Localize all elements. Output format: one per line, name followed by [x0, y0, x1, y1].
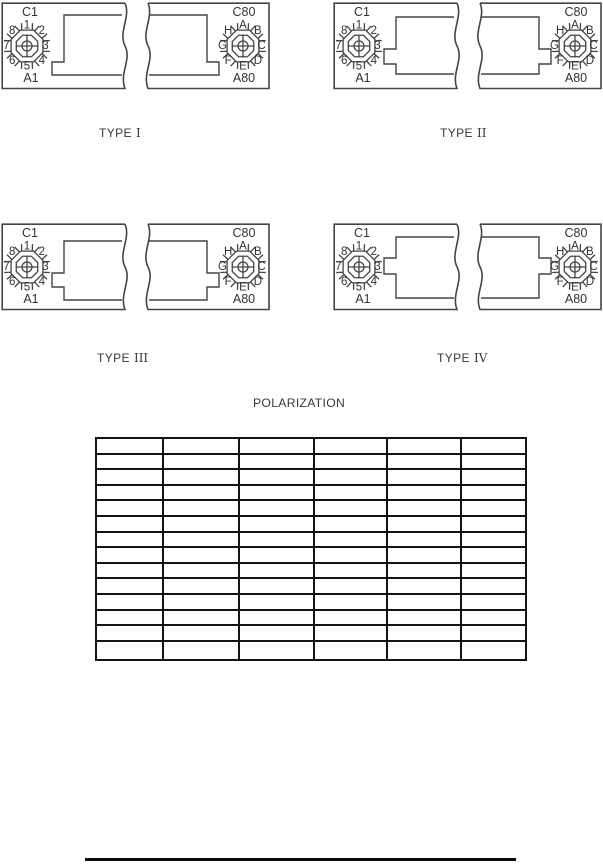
table-cell: [96, 610, 163, 626]
keyway-left: [384, 17, 454, 74]
contact-label-top-right: C80: [565, 5, 588, 19]
dial-position-label: 6: [9, 276, 15, 288]
table-cell: [314, 516, 387, 532]
table-cell: [96, 438, 163, 454]
table-cell: [314, 578, 387, 594]
dial-position-label: D: [254, 276, 262, 288]
dial-position-label: 3: [374, 261, 380, 273]
table-cell: [239, 641, 314, 660]
table-cell: [239, 532, 314, 548]
dial-position-label: H: [224, 25, 232, 37]
keyway-right: [149, 15, 219, 75]
table-cell: [96, 454, 163, 470]
table-cell: [239, 594, 314, 610]
keyway-left: [384, 237, 454, 298]
dial-position-label: 8: [9, 25, 15, 37]
dial-tick-mark: [15, 61, 20, 66]
contact-label-bottom-right: A80: [233, 292, 255, 306]
table-cell: [387, 532, 461, 548]
table-cell: [163, 563, 239, 579]
table-cell: [461, 485, 526, 501]
contact-label-bottom-right: A80: [233, 71, 255, 85]
dial-position-label: F: [225, 276, 232, 288]
dial-position-label: F: [557, 276, 564, 288]
table-cell: [96, 547, 163, 563]
dial-position-label: G: [550, 40, 559, 52]
dial-position-label: 7: [3, 261, 9, 273]
table-cell: [387, 578, 461, 594]
table-cell: [163, 469, 239, 485]
table-cell: [387, 500, 461, 516]
table-cell: [314, 610, 387, 626]
table-row: [96, 516, 526, 532]
dial-position-label: 8: [341, 246, 347, 258]
keyway-right: [481, 17, 551, 74]
contact-label-bottom-left: A1: [23, 71, 38, 85]
dial-position-label: 4: [39, 55, 46, 67]
dial-position-label: 1: [356, 20, 362, 32]
table-cell: [461, 610, 526, 626]
table-row: [96, 594, 526, 610]
dial-position-label: 6: [9, 55, 15, 67]
table-row: [96, 610, 526, 626]
table-cell: [314, 563, 387, 579]
dial-position-label: A: [571, 241, 579, 253]
keyway-left: [52, 241, 122, 300]
dial-position-label: B: [254, 246, 262, 258]
keyway-right: [481, 237, 551, 298]
type-iv-caption: TYPEIV: [437, 351, 487, 365]
keyway-left: [52, 15, 122, 75]
dial-tick-mark: [15, 26, 20, 31]
dial-position-label: C: [589, 40, 597, 52]
table-cell: [163, 454, 239, 470]
table-cell: [387, 485, 461, 501]
table-cell: [239, 625, 314, 641]
dial-tick-mark: [15, 247, 20, 252]
table-cell: [163, 532, 239, 548]
dial-position-label: 2: [39, 246, 45, 258]
table-cell: [96, 578, 163, 594]
table-cell: [461, 532, 526, 548]
dial-position-label: H: [556, 246, 564, 258]
table-row: [96, 563, 526, 579]
table-cell: [96, 532, 163, 548]
table-cell: [239, 563, 314, 579]
table-cell: [96, 516, 163, 532]
table-cell: [239, 500, 314, 516]
dial-position-label: B: [586, 25, 594, 37]
contact-label-bottom-left: A1: [355, 71, 370, 85]
dial-tick-mark: [15, 282, 20, 287]
table-row: [96, 485, 526, 501]
type-numeral: III: [134, 351, 148, 365]
table-cell: [96, 500, 163, 516]
dial-position-label: 7: [3, 40, 9, 52]
dial-tick-mark: [347, 282, 352, 287]
contact-label-top-right: C80: [565, 226, 588, 240]
dial-position-label: A: [239, 241, 247, 253]
table-cell: [314, 500, 387, 516]
dial-position-label: D: [586, 55, 594, 67]
dial-position-label: D: [586, 276, 594, 288]
table-cell: [387, 610, 461, 626]
connector-diagram-type-i: 12345678ABCDEFGHC1A1C80A80: [1, 2, 271, 90]
type-iii-caption: TYPEIII: [97, 351, 148, 365]
dial-position-label: 1: [356, 241, 362, 253]
table-cell: [96, 469, 163, 485]
table-cell: [239, 516, 314, 532]
contact-label-top-left: C1: [354, 226, 370, 240]
contact-label-top-left: C1: [22, 226, 38, 240]
type-word: TYPE: [99, 126, 132, 140]
dial-position-label: 3: [42, 261, 48, 273]
dial-position-label: H: [224, 246, 232, 258]
table-cell: [461, 500, 526, 516]
dial-position-label: 4: [371, 55, 378, 67]
dial-position-label: G: [218, 40, 227, 52]
table-cell: [239, 547, 314, 563]
contact-label-top-left: C1: [22, 5, 38, 19]
table-cell: [387, 594, 461, 610]
table-cell: [239, 454, 314, 470]
table-cell: [314, 438, 387, 454]
table-cell: [314, 454, 387, 470]
dial-position-label: D: [254, 55, 262, 67]
table-cell: [314, 625, 387, 641]
table-cell: [163, 547, 239, 563]
dial-position-label: C: [589, 261, 597, 273]
table-cell: [387, 641, 461, 660]
dial-position-label: B: [254, 25, 262, 37]
contact-label-bottom-right: A80: [565, 292, 587, 306]
table-cell: [163, 594, 239, 610]
table-row: [96, 454, 526, 470]
table-cell: [314, 594, 387, 610]
dial-position-label: 8: [341, 25, 347, 37]
table-cell: [96, 594, 163, 610]
keyway-right: [149, 241, 219, 300]
dial-position-label: C: [257, 40, 265, 52]
table-cell: [163, 610, 239, 626]
table-cell: [163, 578, 239, 594]
table-cell: [461, 547, 526, 563]
dial-position-label: 6: [341, 55, 347, 67]
table-row: [96, 500, 526, 516]
table-cell: [461, 641, 526, 660]
type-word: TYPE: [437, 351, 470, 365]
contact-label-top-right: C80: [233, 5, 256, 19]
table-cell: [387, 516, 461, 532]
table-cell: [387, 625, 461, 641]
table-cell: [461, 578, 526, 594]
dial-position-label: G: [550, 261, 559, 273]
type-word: TYPE: [97, 351, 130, 365]
table-cell: [387, 563, 461, 579]
type-i-caption: TYPEI: [99, 126, 141, 140]
dial-position-label: A: [239, 20, 247, 32]
type-numeral: II: [477, 126, 486, 140]
table-cell: [387, 454, 461, 470]
dial-position-label: C: [257, 261, 265, 273]
dial-position-label: 7: [335, 40, 341, 52]
polarization-title: POLARIZATION: [253, 396, 345, 410]
table-cell: [461, 594, 526, 610]
table-cell: [96, 641, 163, 660]
contact-label-bottom-left: A1: [355, 292, 370, 306]
dial-position-label: 2: [371, 246, 377, 258]
table-cell: [163, 485, 239, 501]
table-cell: [314, 485, 387, 501]
table-cell: [461, 454, 526, 470]
table-row: [96, 625, 526, 641]
connector-diagram-type-iv: 12345678ABCDEFGHC1A1C80A80: [333, 223, 603, 311]
table-cell: [461, 438, 526, 454]
table-cell: [387, 547, 461, 563]
dial-position-label: F: [225, 55, 232, 67]
dial-position-label: 2: [371, 25, 377, 37]
dial-position-label: 1: [24, 20, 30, 32]
type-numeral: IV: [474, 351, 487, 365]
table-cell: [314, 469, 387, 485]
dial-position-label: 1: [24, 241, 30, 253]
table-cell: [96, 563, 163, 579]
dial-position-label: A: [571, 20, 579, 32]
footer-rule: [85, 858, 516, 861]
type-ii-caption: TYPEII: [440, 126, 486, 140]
table-row: [96, 578, 526, 594]
table-row: [96, 469, 526, 485]
type-numeral: I: [136, 126, 141, 140]
dial-tick-mark: [347, 26, 352, 31]
dial-position-label: 3: [42, 40, 48, 52]
connector-diagram-type-iii: 12345678ABCDEFGHC1A1C80A80: [1, 223, 271, 311]
table-cell: [314, 532, 387, 548]
dial-position-label: 8: [9, 246, 15, 258]
table-cell: [461, 469, 526, 485]
type-word: TYPE: [440, 126, 473, 140]
dial-position-label: G: [218, 261, 227, 273]
contact-label-bottom-left: A1: [23, 292, 38, 306]
table-cell: [239, 578, 314, 594]
dial-position-label: 4: [371, 276, 378, 288]
table-cell: [387, 469, 461, 485]
table-cell: [163, 625, 239, 641]
dial-position-label: B: [586, 246, 594, 258]
connector-diagram-type-ii: 12345678ABCDEFGHC1A1C80A80: [333, 2, 603, 90]
table-cell: [314, 641, 387, 660]
dial-tick-mark: [347, 247, 352, 252]
contact-label-top-left: C1: [354, 5, 370, 19]
table-cell: [239, 610, 314, 626]
table-row: [96, 532, 526, 548]
table-cell: [163, 516, 239, 532]
table-cell: [163, 641, 239, 660]
table-row: [96, 547, 526, 563]
contact-label-top-right: C80: [233, 226, 256, 240]
table-cell: [239, 438, 314, 454]
table-cell: [239, 485, 314, 501]
dial-position-label: F: [557, 55, 564, 67]
table-cell: [96, 485, 163, 501]
document-page: 12345678ABCDEFGHC1A1C80A80 12345678ABCDE…: [0, 0, 603, 864]
dial-position-label: H: [556, 25, 564, 37]
table-cell: [387, 438, 461, 454]
table-cell: [163, 500, 239, 516]
table-cell: [96, 625, 163, 641]
contact-label-bottom-right: A80: [565, 71, 587, 85]
dial-tick-mark: [347, 61, 352, 66]
table-cell: [314, 547, 387, 563]
table-row: [96, 438, 526, 454]
dial-position-label: 3: [374, 40, 380, 52]
dial-position-label: 4: [39, 276, 46, 288]
table-cell: [461, 625, 526, 641]
dial-position-label: 7: [335, 261, 341, 273]
dial-position-label: 2: [39, 25, 45, 37]
dial-position-label: 6: [341, 276, 347, 288]
polarization-table: [95, 437, 527, 661]
table-row: [96, 641, 526, 660]
table-cell: [461, 516, 526, 532]
table-cell: [239, 469, 314, 485]
table-cell: [461, 563, 526, 579]
table-cell: [163, 438, 239, 454]
